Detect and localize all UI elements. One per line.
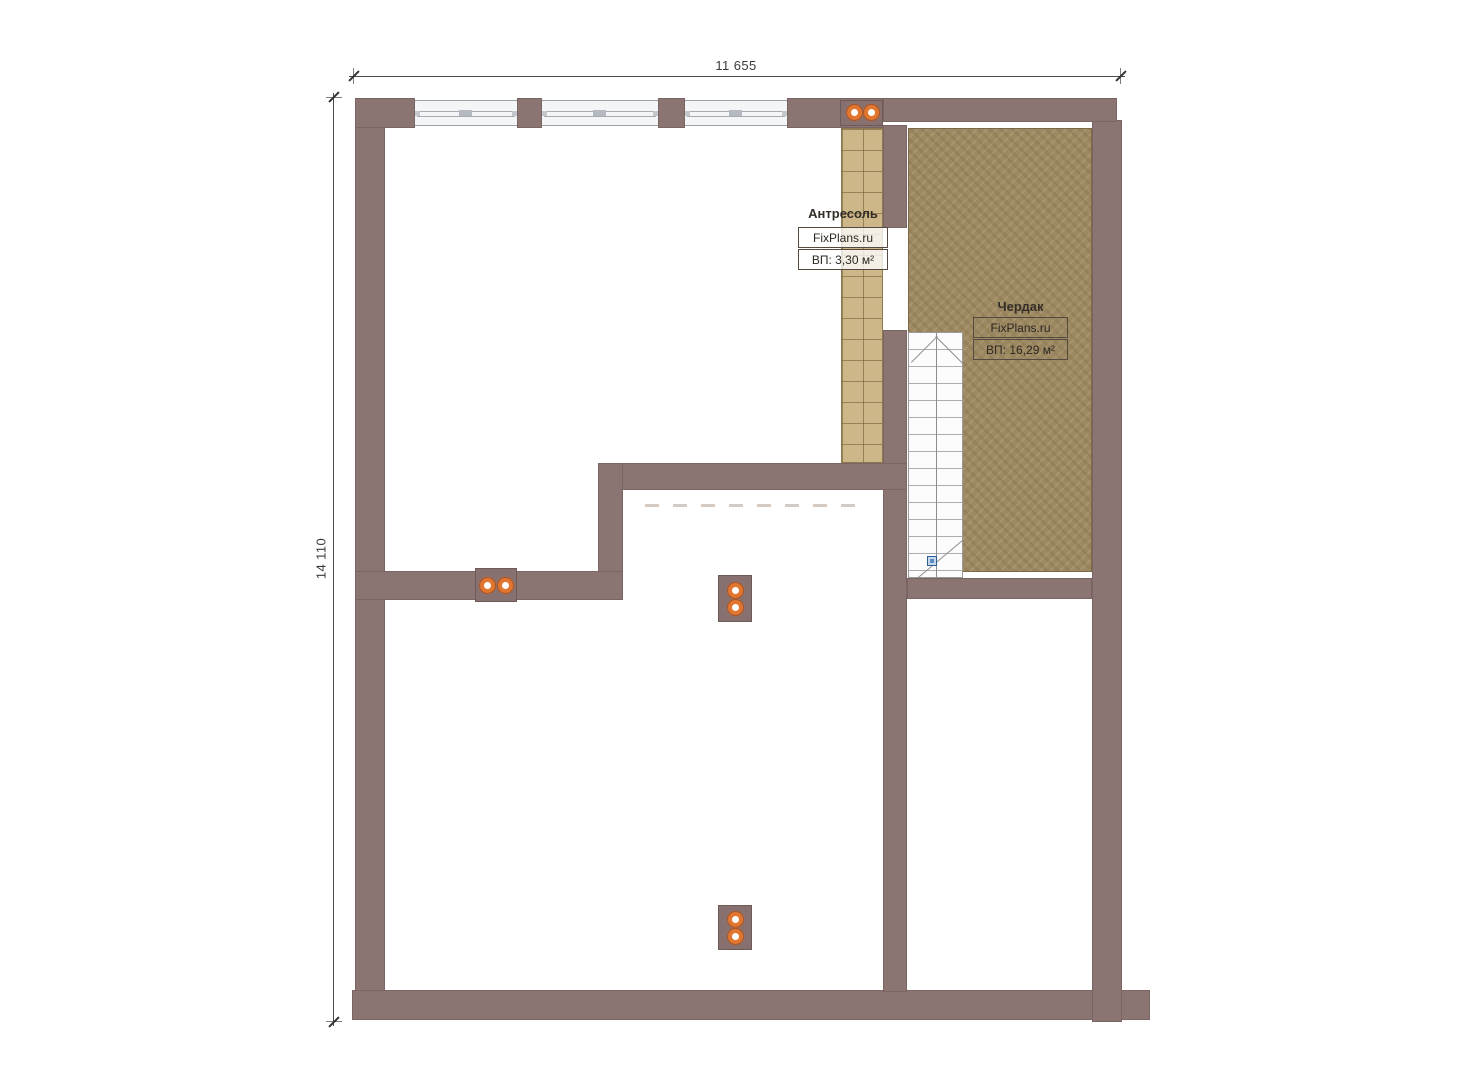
wall-top-corner bbox=[355, 98, 415, 128]
wall-divider-main bbox=[883, 330, 907, 992]
window-jamb bbox=[415, 111, 420, 116]
window-mullion-icon bbox=[593, 110, 606, 116]
beam-dashed-line bbox=[645, 504, 858, 507]
attic-watermark: FixPlans.ru bbox=[973, 317, 1068, 338]
mezzanine-area-label: ВП: 3,30 м² bbox=[798, 249, 888, 270]
window-mullion-icon bbox=[459, 110, 472, 116]
stair-chevron-icon bbox=[911, 336, 938, 363]
wall-horizontal-mid bbox=[598, 463, 907, 490]
wall-right bbox=[1092, 120, 1122, 1022]
mezzanine-watermark: FixPlans.ru bbox=[798, 227, 888, 248]
window-jamb bbox=[653, 111, 658, 116]
staircase bbox=[908, 332, 963, 578]
window-mullion-icon bbox=[729, 110, 742, 116]
dimension-line-left bbox=[333, 93, 334, 1026]
vent-dot-icon bbox=[480, 578, 495, 593]
vent-dot-icon bbox=[864, 105, 879, 120]
stair-direction-marker-icon bbox=[928, 557, 936, 565]
dimension-line-top bbox=[349, 76, 1125, 77]
wall-top-pier-2 bbox=[658, 98, 685, 128]
floor-plan-canvas: 11 655 14 110 bbox=[0, 0, 1474, 1080]
window-jamb bbox=[512, 111, 517, 116]
wall-bottom bbox=[352, 990, 1150, 1020]
window-jamb bbox=[782, 111, 787, 116]
window-1 bbox=[415, 100, 517, 126]
vent-dot-icon bbox=[728, 912, 743, 927]
window-2 bbox=[542, 100, 658, 126]
mezzanine-room-title: Антресоль bbox=[798, 206, 888, 221]
vent-dot-icon bbox=[728, 600, 743, 615]
vent-dot-icon bbox=[728, 929, 743, 944]
vent-dot-icon bbox=[498, 578, 513, 593]
wall-left bbox=[355, 98, 385, 1020]
wall-horizontal-right bbox=[907, 578, 1092, 599]
stair-cut-line bbox=[911, 539, 964, 584]
window-jamb bbox=[685, 111, 690, 116]
window-jamb bbox=[542, 111, 547, 116]
dimension-tick-icon bbox=[328, 1016, 339, 1027]
attic-area-label: ВП: 16,29 м² bbox=[973, 339, 1068, 360]
stair-centerline bbox=[936, 333, 937, 577]
window-3 bbox=[685, 100, 787, 126]
vent-dot-icon bbox=[847, 105, 862, 120]
dimension-label-left: 14 110 bbox=[314, 529, 329, 589]
dimension-label-top: 11 655 bbox=[686, 58, 786, 73]
vent-dot-icon bbox=[728, 583, 743, 598]
wall-top-pier-1 bbox=[517, 98, 542, 128]
wall-top-right-segment bbox=[883, 98, 1117, 122]
attic-room-title: Чердак bbox=[973, 299, 1068, 314]
stair-chevron-icon bbox=[935, 336, 963, 364]
mezzanine-floor-area bbox=[841, 128, 883, 463]
